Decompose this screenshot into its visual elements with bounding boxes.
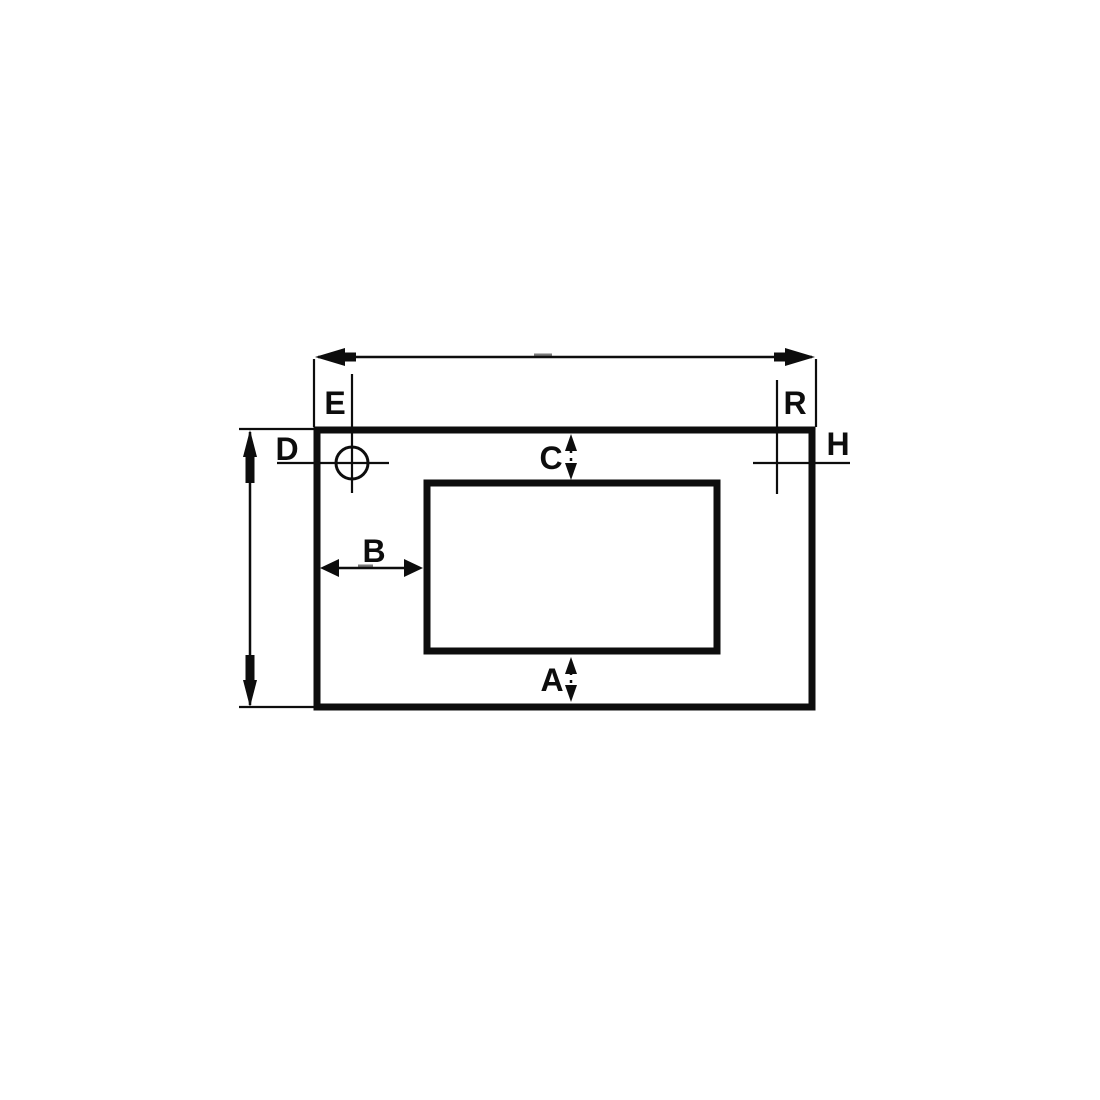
height-arrowhead-top-icon (243, 430, 257, 457)
label-c: C (539, 440, 562, 476)
dimension-diagram: E D R H C B A (0, 0, 1100, 1100)
height-arrowhead-bottom-icon (243, 680, 257, 707)
label-b: B (362, 533, 385, 569)
technical-drawing-page: E D R H C B A (0, 0, 1100, 1100)
c-arrowhead-up-icon (565, 434, 577, 451)
b-arrowhead-left-icon (320, 559, 339, 577)
label-e: E (324, 385, 345, 421)
inner-cutout-rectangle (427, 483, 717, 651)
b-arrowhead-right-icon (404, 559, 423, 577)
a-arrowhead-up-icon (565, 657, 577, 674)
label-d: D (275, 431, 298, 467)
a-arrowhead-down-icon (565, 685, 577, 702)
label-r: R (783, 385, 806, 421)
label-h: H (826, 426, 849, 462)
label-a: A (540, 662, 563, 698)
width-arrowhead-left-icon (315, 348, 345, 366)
c-arrowhead-down-icon (565, 463, 577, 480)
width-arrowhead-right-icon (785, 348, 815, 366)
